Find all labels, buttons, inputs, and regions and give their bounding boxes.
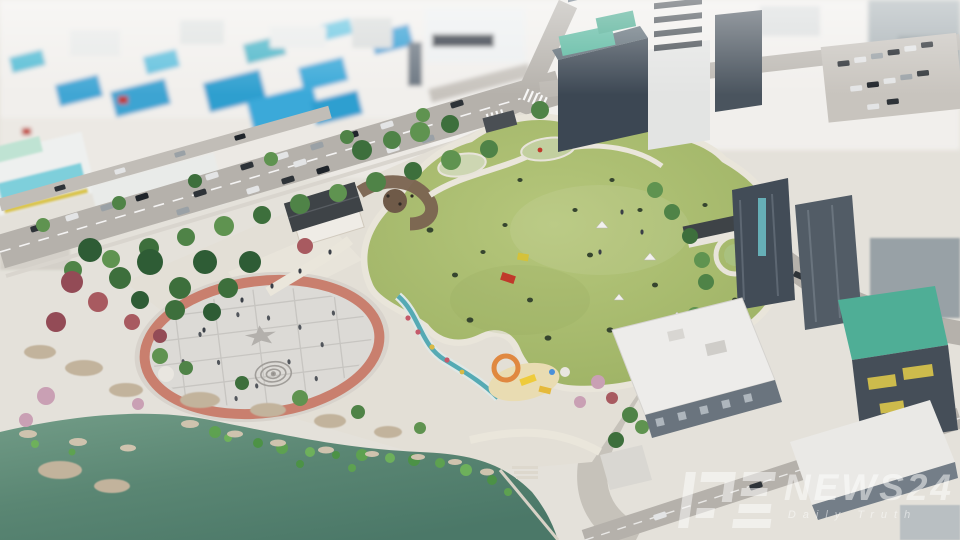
render-canvas bbox=[0, 0, 960, 540]
depth-of-field-haze bbox=[0, 0, 960, 95]
aerial-park-render: NEWS24 Daily Truth bbox=[0, 0, 960, 540]
